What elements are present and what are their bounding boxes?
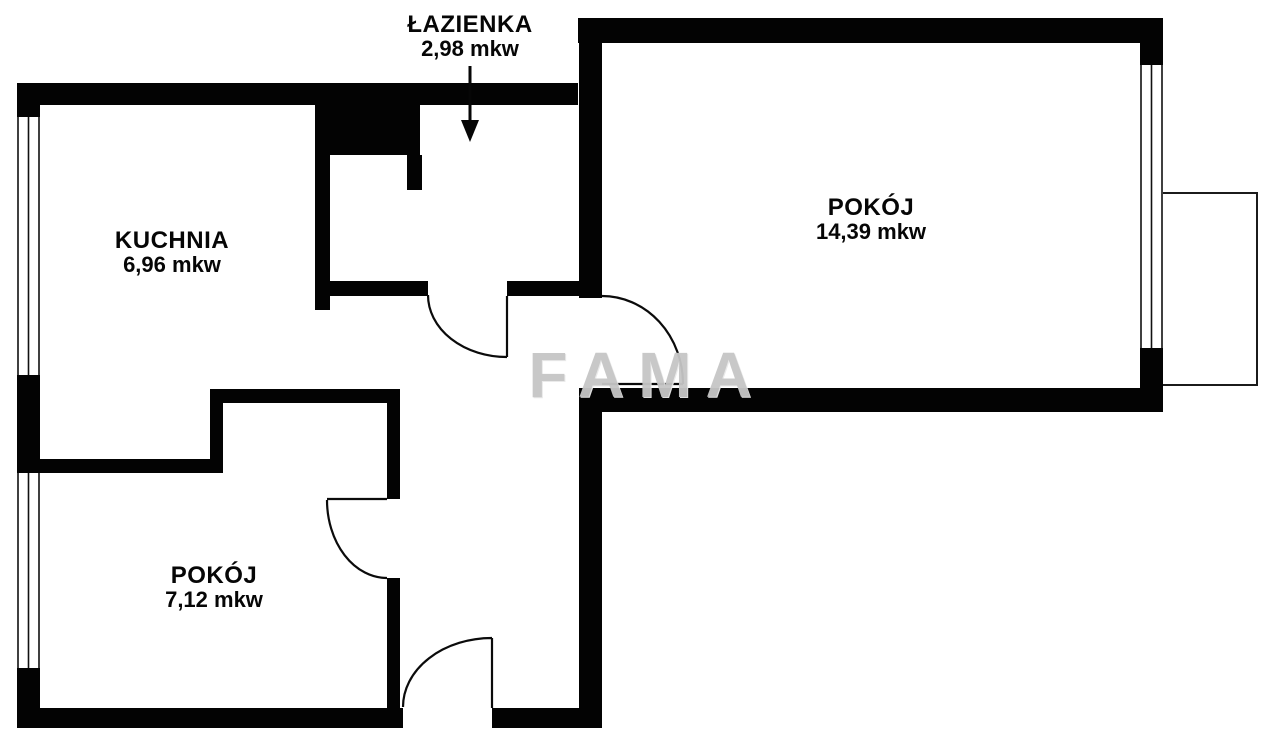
wall-right-corner-top [1140, 18, 1163, 65]
room-label-pokoj-large: POKÓJ 14,39 mkw [816, 195, 926, 244]
room-area: 6,96 mkw [115, 253, 229, 277]
floor-plan: ŁAZIENKA 2,98 mkw KUCHNIA 6,96 mkw POKÓJ… [0, 0, 1280, 750]
wall-kitchen-east [315, 100, 330, 310]
wall-bathroom-block [330, 100, 420, 155]
wall-hall-east-lower [579, 390, 602, 728]
wall-bathroom-south-west [330, 281, 428, 296]
wall-bottom-west [17, 708, 403, 728]
room-name: POKÓJ [165, 563, 263, 588]
wall-step [210, 389, 400, 403]
wall-left-corner-top [17, 83, 40, 117]
room-label-kuchnia: KUCHNIA 6,96 mkw [115, 228, 229, 277]
wall-bathroom-south-east [507, 281, 602, 296]
wall-top-west [17, 83, 578, 105]
room-area: 14,39 mkw [816, 220, 926, 244]
wall-bathroom-stub [407, 155, 422, 190]
wall-left-pier [17, 375, 40, 473]
wall-top-east [578, 18, 1163, 43]
room-area: 7,12 mkw [165, 588, 263, 612]
window-left-lower [17, 473, 40, 668]
room-area: 2,98 mkw [407, 37, 532, 61]
window-left-upper [17, 117, 40, 375]
door-entrance [403, 638, 492, 708]
wall-room-small-east-lower [387, 578, 400, 710]
window-right [1140, 65, 1163, 348]
room-name: POKÓJ [816, 195, 926, 220]
wall-room-small-east-upper [387, 389, 400, 499]
wall-right-corner-bottom [1140, 348, 1163, 412]
room-name: KUCHNIA [115, 228, 229, 253]
bathroom-arrow-head [461, 120, 479, 142]
room-label-lazienka: ŁAZIENKA 2,98 mkw [407, 12, 532, 61]
wall-hall-east-upper [579, 18, 602, 298]
room-name: ŁAZIENKA [407, 12, 532, 37]
wall-kitchen-south [17, 459, 223, 473]
interior-walls [17, 100, 602, 710]
door-bathroom [428, 295, 507, 357]
watermark-logo: FAMA [528, 338, 765, 412]
room-label-pokoj-small: POKÓJ 7,12 mkw [165, 563, 263, 612]
balcony-outline [1162, 193, 1257, 385]
door-room-small [327, 499, 387, 578]
